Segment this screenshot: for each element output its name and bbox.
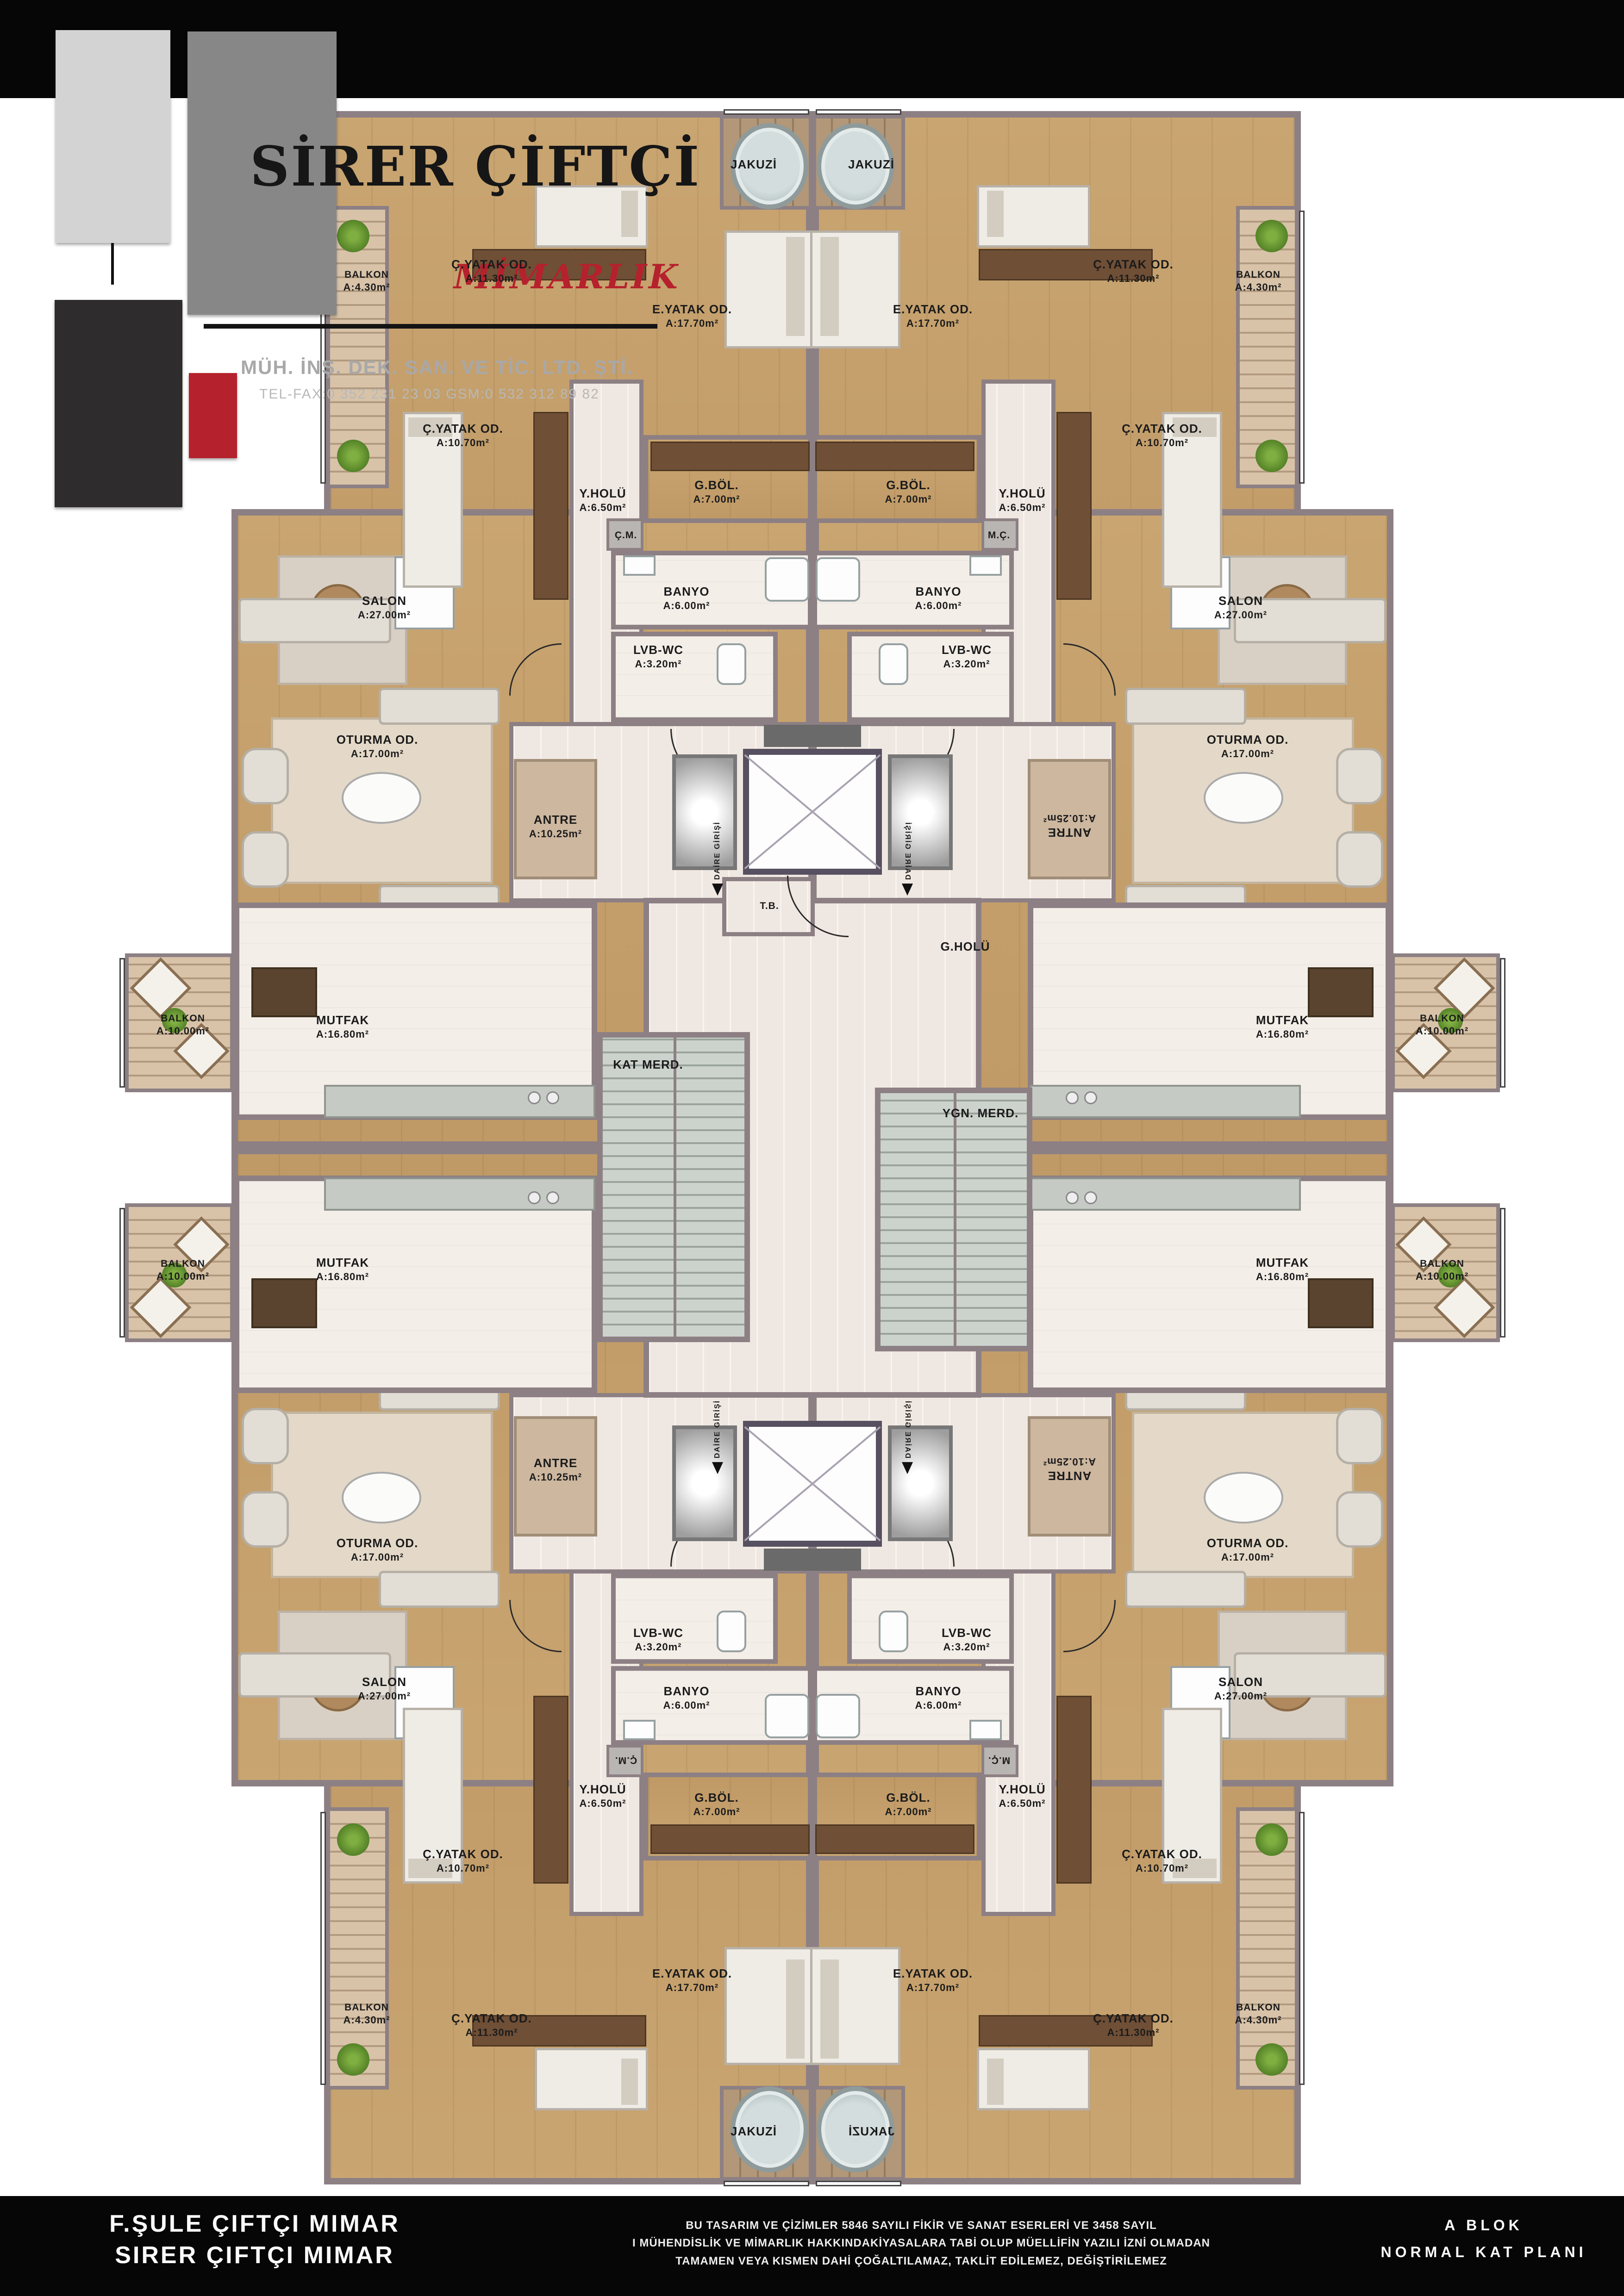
entry-marker: DAİRE GİRİŞİ xyxy=(902,1400,913,1474)
room-label-lvbwc: LVB-WCA:3.20m² xyxy=(633,642,683,670)
wardrobe xyxy=(650,1824,810,1854)
room-label-mutfak: MUTFAKA:16.80m² xyxy=(316,1013,369,1040)
elevator-bottom xyxy=(743,1421,882,1547)
room-label-mutfak: MUTFAKA:16.80m² xyxy=(316,1255,369,1283)
utility-shaft xyxy=(888,754,953,870)
floor-plan-sheet: { "header": { "title": "İBRAHİM BAŞBOĞA"… xyxy=(0,0,1624,2296)
sink-bowl xyxy=(546,1191,559,1204)
room-label-lvbwc: LVB-WCA:3.20m² xyxy=(942,1625,992,1653)
plant xyxy=(1255,220,1288,252)
room-label-tb: T.B. xyxy=(760,900,779,912)
toilet xyxy=(717,643,746,685)
plant xyxy=(1255,2043,1288,2076)
room-label-katmerd: KAT MERD. xyxy=(613,1057,683,1072)
dining-table xyxy=(251,1278,317,1328)
plant xyxy=(1255,440,1288,472)
wardrobe xyxy=(815,1824,974,1854)
balcony-railing xyxy=(320,1812,326,2085)
terrace-railing xyxy=(816,109,901,115)
bed-pillow xyxy=(786,237,805,336)
sitting-sofa xyxy=(379,1571,500,1608)
utility-shaft xyxy=(672,754,737,870)
room-label-lvbwc: LVB-WCA:3.20m² xyxy=(942,642,992,670)
terrace-railing xyxy=(724,2181,809,2186)
room-label-jakuzi: JAKUZİ xyxy=(731,2124,777,2139)
room-label-antre-mirrored: ANTREA:10.25m² xyxy=(1043,1456,1096,1483)
room-label-banyo: BANYOA:6.00m² xyxy=(915,584,962,612)
elevator-top xyxy=(743,749,882,875)
room-label-yholu: Y.HOLÜA:6.50m² xyxy=(579,1782,626,1810)
room-label-balkon: BALKONA:10.00m² xyxy=(1416,1013,1468,1038)
shower xyxy=(765,1694,809,1738)
room-label-balkon: BALKONA:4.30m² xyxy=(344,2002,390,2027)
bed-pillow xyxy=(987,191,1004,237)
room-label-antre: ANTREA:10.25m² xyxy=(529,1456,582,1483)
room-label-oturma: OTURMA OD.A:17.00m² xyxy=(1207,1536,1289,1563)
architect-1: F.ŞULE ÇIFTÇI MIMAR xyxy=(28,2209,481,2240)
plan-name: NORMAL KAT PLANI xyxy=(1370,2239,1597,2266)
armchair xyxy=(242,1491,289,1548)
wardrobe xyxy=(533,1696,568,1884)
plant xyxy=(337,1823,369,1856)
bed-pillow xyxy=(820,237,839,336)
balcony-railing xyxy=(119,958,125,1088)
room-label-gbol: G.BÖL.A:7.00m² xyxy=(693,478,740,505)
plant xyxy=(337,440,369,472)
room-label-cyatak: Ç.YATAK OD.A:11.30m² xyxy=(451,257,532,285)
wardrobe xyxy=(650,442,810,471)
room-label-yholu: Y.HOLÜA:6.50m² xyxy=(999,486,1045,514)
room-label-jakuzi-mirrored: JAKUZİ xyxy=(848,2124,894,2139)
sink xyxy=(623,555,656,576)
room-label-oturma: OTURMA OD.A:17.00m² xyxy=(1207,732,1289,760)
balcony-railing xyxy=(1500,1208,1505,1338)
copyright-notice: BU TASARIM VE ÇİZİMLER 5846 SAYILI FİKİR… xyxy=(532,2217,1310,2270)
room-label-yholu: Y.HOLÜA:6.50m² xyxy=(579,486,626,514)
wardrobe xyxy=(1056,1696,1092,1884)
wardrobe xyxy=(1056,412,1092,600)
toilet xyxy=(879,643,908,685)
sink-bowl xyxy=(1066,1191,1079,1204)
balcony-railing xyxy=(1299,1812,1305,2085)
room-label-salon: SALONA:27.00m² xyxy=(358,593,411,621)
room-label-mutfak: MUTFAKA:16.80m² xyxy=(1256,1255,1309,1283)
bed-pillow xyxy=(987,2059,1004,2105)
room-label-mc: M.Ç. xyxy=(988,529,1010,541)
shower xyxy=(816,1694,860,1738)
sink-bowl xyxy=(1084,1091,1097,1104)
wardrobe xyxy=(533,412,568,600)
room-label-oturma: OTURMA OD.A:17.00m² xyxy=(337,1536,418,1563)
logo-contact-line: TEL-FAX:0 352 231 23 03 GSM:0 532 312 89… xyxy=(259,386,600,402)
room-label-salon: SALONA:27.00m² xyxy=(1214,1674,1267,1702)
room-label-eyatak: E.YATAK OD.A:17.70m² xyxy=(893,302,973,330)
room-label-gholu: G.HOLÜ xyxy=(940,939,990,954)
room-label-oturma: OTURMA OD.A:17.00m² xyxy=(337,732,418,760)
room-label-banyo: BANYOA:6.00m² xyxy=(915,1684,962,1711)
plant xyxy=(1255,1823,1288,1856)
room-label-gbol: G.BÖL.A:7.00m² xyxy=(693,1790,740,1818)
room-label-balkon: BALKONA:4.30m² xyxy=(1235,2002,1282,2027)
utility-shaft xyxy=(888,1425,953,1541)
utility-shaft xyxy=(672,1425,737,1541)
notice-line-3: TAMAMEN VEYA KISMEN DAHİ ÇOĞALTILAMAZ, T… xyxy=(532,2252,1310,2270)
room-label-mc-mirrored: M.Ç. xyxy=(988,1754,1010,1766)
logo-square-light xyxy=(56,30,170,243)
room-label-lvbwc: LVB-WCA:3.20m² xyxy=(633,1625,683,1653)
bed-pillow xyxy=(621,2059,638,2105)
toilet xyxy=(879,1611,908,1652)
room-label-balkon: BALKONA:10.00m² xyxy=(1416,1258,1468,1283)
sitting-sofa xyxy=(1125,688,1246,725)
oval-table xyxy=(342,772,421,824)
shower xyxy=(816,557,860,602)
sitting-sofa xyxy=(379,688,500,725)
armchair xyxy=(1336,748,1383,804)
room-label-antre: ANTREA:10.25m² xyxy=(529,812,582,840)
armchair xyxy=(242,831,289,888)
oval-table xyxy=(1204,1472,1283,1524)
room-label-cyatak: Ç.YATAK OD.A:11.30m² xyxy=(1093,257,1174,285)
terrace-railing xyxy=(816,2181,901,2186)
dining-table xyxy=(1308,1278,1374,1328)
notice-line-2: I MÜHENDİSLİK VE MİMARLIK HAKKINDAKİYASA… xyxy=(532,2234,1310,2252)
room-label-balkon: BALKONA:4.30m² xyxy=(344,269,390,294)
fire-stair xyxy=(875,1088,1032,1351)
sitting-sofa xyxy=(1125,1571,1246,1608)
room-label-banyo: BANYOA:6.00m² xyxy=(663,1684,710,1711)
room-label-salon: SALONA:27.00m² xyxy=(358,1674,411,1702)
armchair xyxy=(242,748,289,804)
balcony-railing xyxy=(1500,958,1505,1088)
bed-pillow xyxy=(820,1960,839,2059)
armchair xyxy=(1336,831,1383,888)
room-label-jakuzi: JAKUZİ xyxy=(848,157,894,172)
room-label-cyatak: Ç.YATAK OD.A:10.70m² xyxy=(423,1847,503,1874)
logo-divider xyxy=(204,324,657,329)
entry-marker: DAİRE GİRİŞİ xyxy=(712,1400,723,1474)
room-label-cyatak: Ç.YATAK OD.A:11.30m² xyxy=(451,2011,532,2039)
logo-connector xyxy=(111,243,114,285)
entry-marker: DAİRE GİRİŞİ xyxy=(712,821,723,896)
sink xyxy=(969,555,1002,576)
armchair xyxy=(242,1408,289,1464)
room-label-eyatak: E.YATAK OD.A:17.70m² xyxy=(652,1966,732,1994)
architect-names: F.ŞULE ÇIFTÇI MIMAR SIRER ÇIFTÇI MIMAR xyxy=(28,2209,481,2271)
shower xyxy=(765,557,809,602)
toilet xyxy=(717,1611,746,1652)
logo-square-dark xyxy=(55,300,182,507)
sheet-identifier: A BLOK NORMAL KAT PLANI xyxy=(1370,2212,1597,2265)
logo-name: SİRER ÇİFTÇİ xyxy=(250,134,700,199)
sink-bowl xyxy=(1084,1191,1097,1204)
bed-pillow xyxy=(786,1960,805,2059)
room-label-ygnmerd: YGN. MERD. xyxy=(943,1106,1019,1121)
room-label-balkon: BALKONA:10.00m² xyxy=(156,1013,209,1038)
oval-table xyxy=(1204,772,1283,824)
plant xyxy=(337,220,369,252)
room-label-gbol: G.BÖL.A:7.00m² xyxy=(885,1790,932,1818)
armchair xyxy=(1336,1491,1383,1548)
logo-square-red xyxy=(189,373,237,458)
room-label-balkon: BALKONA:4.30m² xyxy=(1235,269,1282,294)
architect-2: SIRER ÇIFTÇI MIMAR xyxy=(28,2240,481,2271)
sink-bowl xyxy=(528,1191,541,1204)
entry-marker: DAİRE GİRİŞİ xyxy=(902,821,913,896)
room-label-balkon: BALKONA:10.00m² xyxy=(156,1258,209,1283)
sink xyxy=(969,1720,1002,1740)
wardrobe xyxy=(815,442,974,471)
room-label-eyatak: E.YATAK OD.A:17.70m² xyxy=(652,302,732,330)
sink-bowl xyxy=(1066,1091,1079,1104)
room-label-antre-mirrored: ANTREA:10.25m² xyxy=(1043,812,1096,840)
room-label-yholu: Y.HOLÜA:6.50m² xyxy=(999,1782,1045,1810)
terrace-railing xyxy=(724,109,809,115)
sink-bowl xyxy=(528,1091,541,1104)
balcony-railing xyxy=(119,1208,125,1338)
notice-line-1: BU TASARIM VE ÇİZİMLER 5846 SAYILI FİKİR… xyxy=(532,2217,1310,2234)
sink xyxy=(623,1720,656,1740)
room-label-mutfak: MUTFAKA:16.80m² xyxy=(1256,1013,1309,1040)
room-label-cyatak: Ç.YATAK OD.A:10.70m² xyxy=(1122,421,1202,449)
room-label-cm-mirrored: Ç.M. xyxy=(615,1754,637,1766)
room-label-cm: Ç.M. xyxy=(615,529,637,541)
dining-table xyxy=(1308,967,1374,1017)
room-label-cyatak: Ç.YATAK OD.A:11.30m² xyxy=(1093,2011,1174,2039)
room-label-eyatak: E.YATAK OD.A:17.70m² xyxy=(893,1966,973,1994)
armchair xyxy=(1336,1408,1383,1464)
elevator-machine xyxy=(764,725,861,747)
room-label-jakuzi: JAKUZİ xyxy=(731,157,777,172)
main-stair xyxy=(597,1032,750,1342)
oval-table xyxy=(342,1472,421,1524)
room-label-cyatak: Ç.YATAK OD.A:10.70m² xyxy=(1122,1847,1202,1874)
logo-company-line: MÜH. İNŞ. DEK. SAN. VE TİC. LTD. ŞTİ. xyxy=(241,356,633,379)
room-label-banyo: BANYOA:6.00m² xyxy=(663,584,710,612)
plant xyxy=(337,2043,369,2076)
room-label-salon: SALONA:27.00m² xyxy=(1214,593,1267,621)
balcony-railing xyxy=(1299,211,1305,484)
elevator-machine xyxy=(764,1549,861,1571)
dining-table xyxy=(251,967,317,1017)
block-name: A BLOK xyxy=(1370,2212,1597,2239)
room-label-cyatak: Ç.YATAK OD.A:10.70m² xyxy=(423,421,503,449)
room-label-gbol: G.BÖL.A:7.00m² xyxy=(885,478,932,505)
sink-bowl xyxy=(546,1091,559,1104)
